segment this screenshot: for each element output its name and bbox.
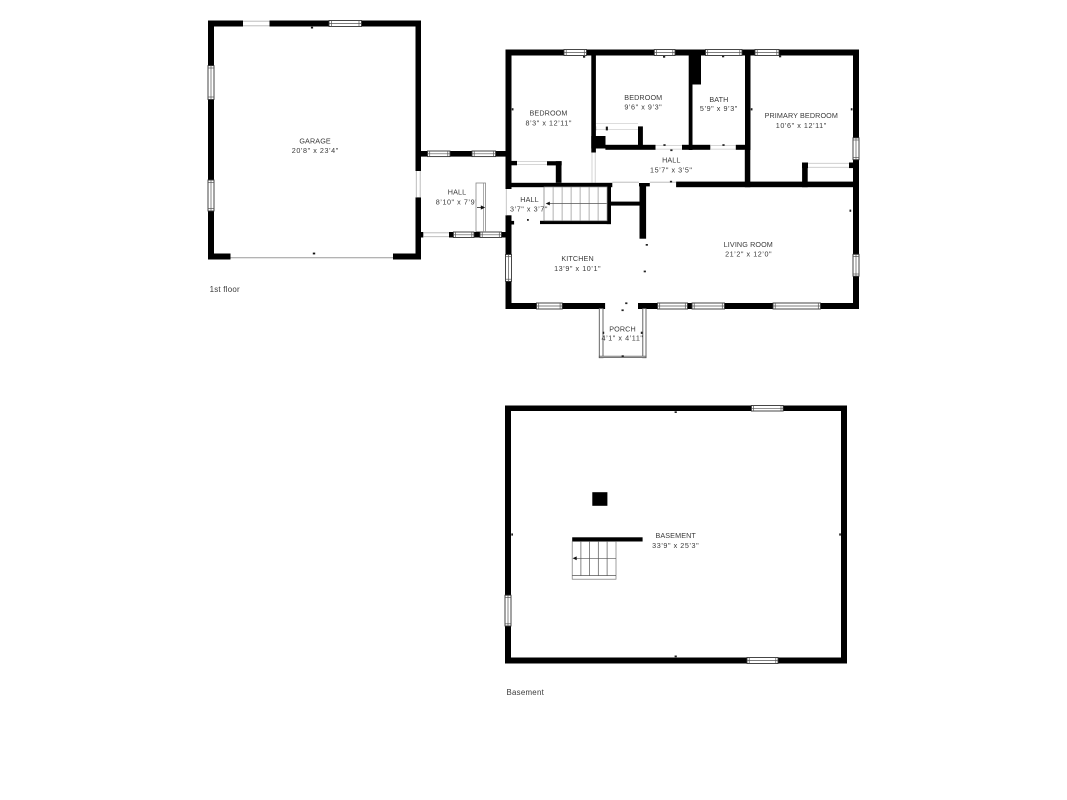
svg-text:3’7" x 3’7": 3’7" x 3’7" [510, 204, 548, 213]
svg-text:13’9" x 10’1": 13’9" x 10’1" [554, 264, 601, 273]
svg-text:10’6" x 12’11": 10’6" x 12’11" [776, 121, 827, 130]
svg-text:BASEMENT: BASEMENT [655, 531, 696, 540]
svg-text:8’10" x 7’9": 8’10" x 7’9" [436, 198, 478, 207]
svg-text:5’9" x 9’3": 5’9" x 9’3" [700, 104, 738, 113]
svg-text:PRIMARY BEDROOM: PRIMARY BEDROOM [765, 111, 838, 120]
svg-text:9’6" x 9’3": 9’6" x 9’3" [624, 102, 662, 111]
svg-text:PORCH: PORCH [609, 324, 636, 333]
svg-text:BEDROOM: BEDROOM [624, 93, 662, 102]
svg-text:Basement: Basement [507, 688, 545, 697]
svg-text:BATH: BATH [709, 95, 728, 104]
svg-text:1st floor: 1st floor [210, 285, 240, 294]
svg-text:BEDROOM: BEDROOM [530, 109, 568, 118]
svg-text:8’3" x 12’11": 8’3" x 12’11" [525, 118, 571, 127]
svg-text:GARAGE: GARAGE [299, 137, 331, 146]
svg-text:21’2" x 12’0": 21’2" x 12’0" [725, 250, 772, 259]
svg-text:HALL: HALL [448, 188, 466, 197]
svg-text:4’1" x 4’11": 4’1" x 4’11" [602, 334, 644, 343]
svg-text:33’9" x 25’3": 33’9" x 25’3" [652, 541, 699, 550]
svg-text:HALL: HALL [662, 156, 680, 165]
svg-text:KITCHEN: KITCHEN [561, 254, 593, 263]
svg-text:LIVING ROOM: LIVING ROOM [724, 240, 773, 249]
svg-text:15’7" x 3’5": 15’7" x 3’5" [650, 165, 692, 174]
svg-text:HALL: HALL [520, 195, 538, 204]
svg-text:20’8" x 23’4": 20’8" x 23’4" [292, 146, 339, 155]
